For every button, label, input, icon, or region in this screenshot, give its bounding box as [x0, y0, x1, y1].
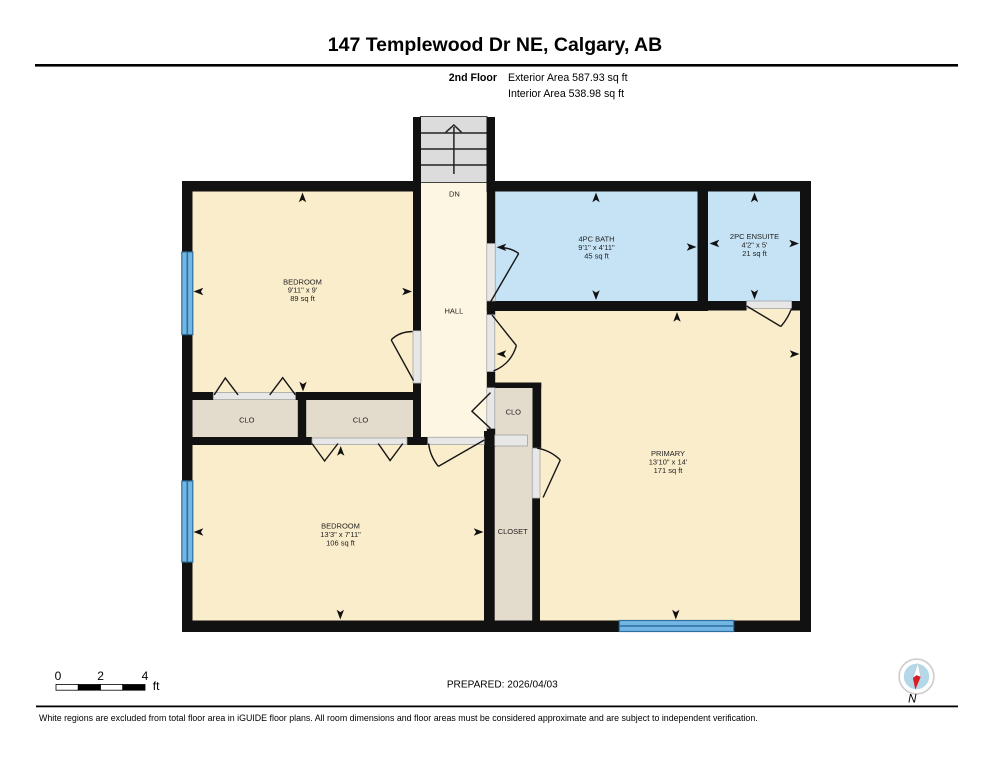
- svg-text:N: N: [908, 693, 917, 705]
- svg-text:147 Templewood Dr NE, Calgary,: 147 Templewood Dr NE, Calgary, AB: [328, 34, 662, 56]
- svg-text:PREPARED: 2026/04/03: PREPARED: 2026/04/03: [447, 680, 558, 691]
- svg-text:DN: DN: [449, 190, 460, 199]
- svg-text:CLO: CLO: [353, 416, 369, 425]
- svg-text:171 sq ft: 171 sq ft: [654, 466, 684, 475]
- svg-text:0: 0: [55, 669, 62, 683]
- svg-text:106 sq ft: 106 sq ft: [326, 538, 356, 547]
- svg-text:ft: ft: [153, 679, 160, 693]
- svg-text:21 sq ft: 21 sq ft: [742, 249, 768, 258]
- svg-text:4: 4: [142, 669, 149, 683]
- svg-text:White regions are excluded fro: White regions are excluded from total fl…: [39, 713, 758, 723]
- svg-text:89 sq ft: 89 sq ft: [290, 294, 316, 303]
- svg-text:2nd Floor: 2nd Floor: [449, 72, 497, 84]
- svg-text:Exterior Area 587.93 sq ft: Exterior Area 587.93 sq ft: [508, 72, 628, 84]
- svg-text:CLO: CLO: [239, 416, 255, 425]
- svg-text:CLO: CLO: [506, 408, 522, 417]
- svg-text:Interior Area 538.98 sq ft: Interior Area 538.98 sq ft: [508, 88, 624, 100]
- svg-text:45 sq ft: 45 sq ft: [584, 251, 610, 260]
- svg-text:HALL: HALL: [445, 307, 464, 316]
- svg-text:CLOSET: CLOSET: [498, 527, 528, 536]
- svg-text:2: 2: [97, 669, 104, 683]
